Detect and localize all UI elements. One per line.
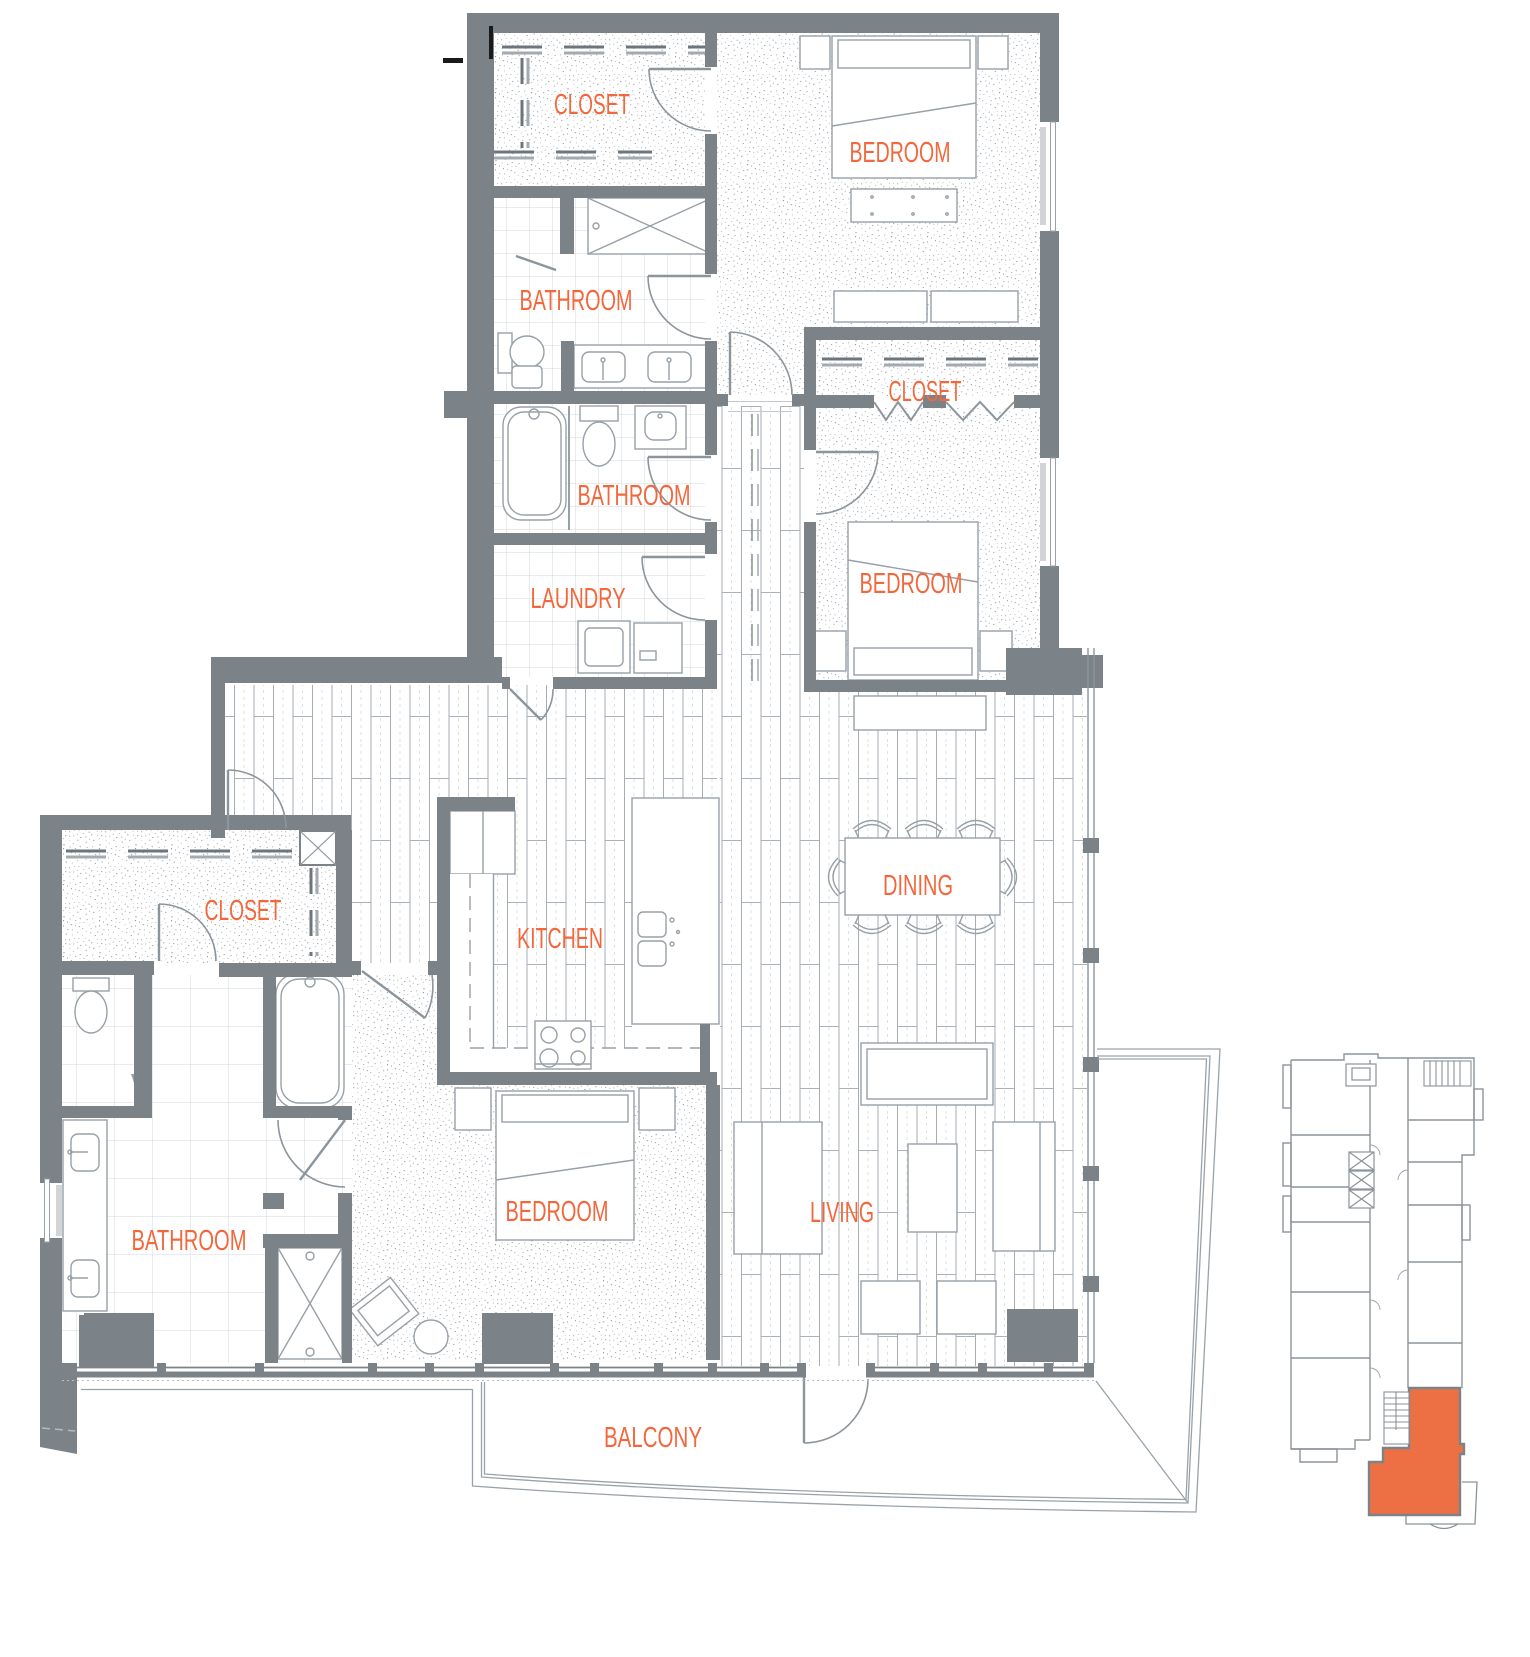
svg-text:BATHROOM: BATHROOM (132, 1225, 247, 1257)
svg-text:BEDROOM: BEDROOM (850, 137, 951, 169)
svg-text:LIVING: LIVING (810, 1197, 874, 1229)
svg-text:CLOSET: CLOSET (554, 89, 630, 121)
svg-text:BATHROOM: BATHROOM (578, 480, 691, 512)
svg-text:BATHROOM: BATHROOM (520, 285, 633, 317)
svg-text:DINING: DINING (883, 870, 953, 902)
svg-text:BALCONY: BALCONY (604, 1422, 702, 1454)
svg-text:LAUNDRY: LAUNDRY (531, 583, 626, 615)
svg-text:BEDROOM: BEDROOM (860, 568, 963, 600)
svg-text:CLOSET: CLOSET (889, 376, 962, 408)
svg-text:BEDROOM: BEDROOM (506, 1196, 609, 1228)
svg-text:KITCHEN: KITCHEN (517, 923, 603, 955)
svg-text:CLOSET: CLOSET (205, 895, 282, 927)
